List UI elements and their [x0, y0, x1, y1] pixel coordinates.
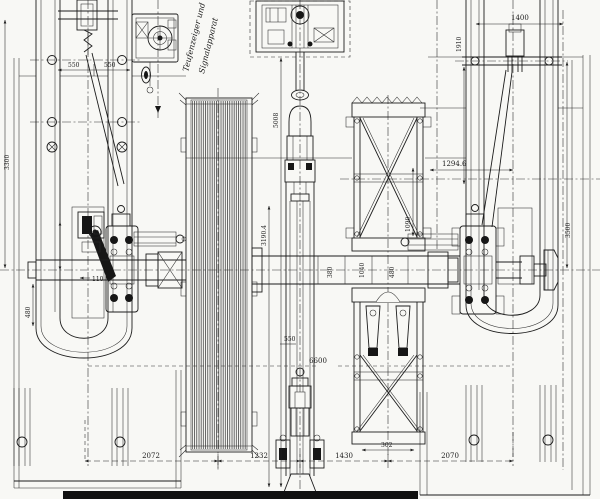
- engineering-drawing-sheet: Teufenzeiger und Signalapparat: [0, 0, 600, 499]
- dim-shaft-b: 1040: [359, 263, 366, 278]
- sheet-edge-bar: [63, 491, 418, 499]
- dim-piston-upper: 5008: [273, 113, 280, 128]
- dim-girder-width: 302: [381, 442, 393, 449]
- winding-engine-plan-drawing: Teufenzeiger und Signalapparat: [0, 0, 600, 499]
- rope-drum: [179, 93, 259, 457]
- dim-bottom-b: 1232: [250, 452, 268, 460]
- dim-rod-guide: 550: [284, 336, 296, 343]
- dim-top-left-a: 550: [68, 62, 80, 69]
- dim-bottom-d: 2070: [441, 452, 459, 460]
- dim-crank-right: 1294.6: [442, 160, 467, 168]
- dim-shaft-a: 380: [327, 266, 334, 278]
- dim-right-edge: 3500: [565, 223, 572, 238]
- dim-bottom-a: 2072: [142, 452, 160, 460]
- dim-left-edge: 3300: [4, 155, 11, 170]
- dim-left-lower: 480: [25, 306, 32, 318]
- dim-bearing-left: 110: [92, 276, 104, 283]
- dim-girder-height: 1090: [405, 217, 412, 232]
- dim-top-left-b: 550: [104, 62, 116, 69]
- dim-right-upper: 1910: [456, 37, 463, 52]
- dim-shaft-c: 480: [389, 266, 396, 278]
- dim-top-right: 1400: [511, 14, 529, 22]
- dim-bottom-c: 1430: [335, 452, 353, 460]
- dim-center-span: 6600: [309, 357, 327, 365]
- dim-piston-lower: 3190.4: [261, 225, 268, 246]
